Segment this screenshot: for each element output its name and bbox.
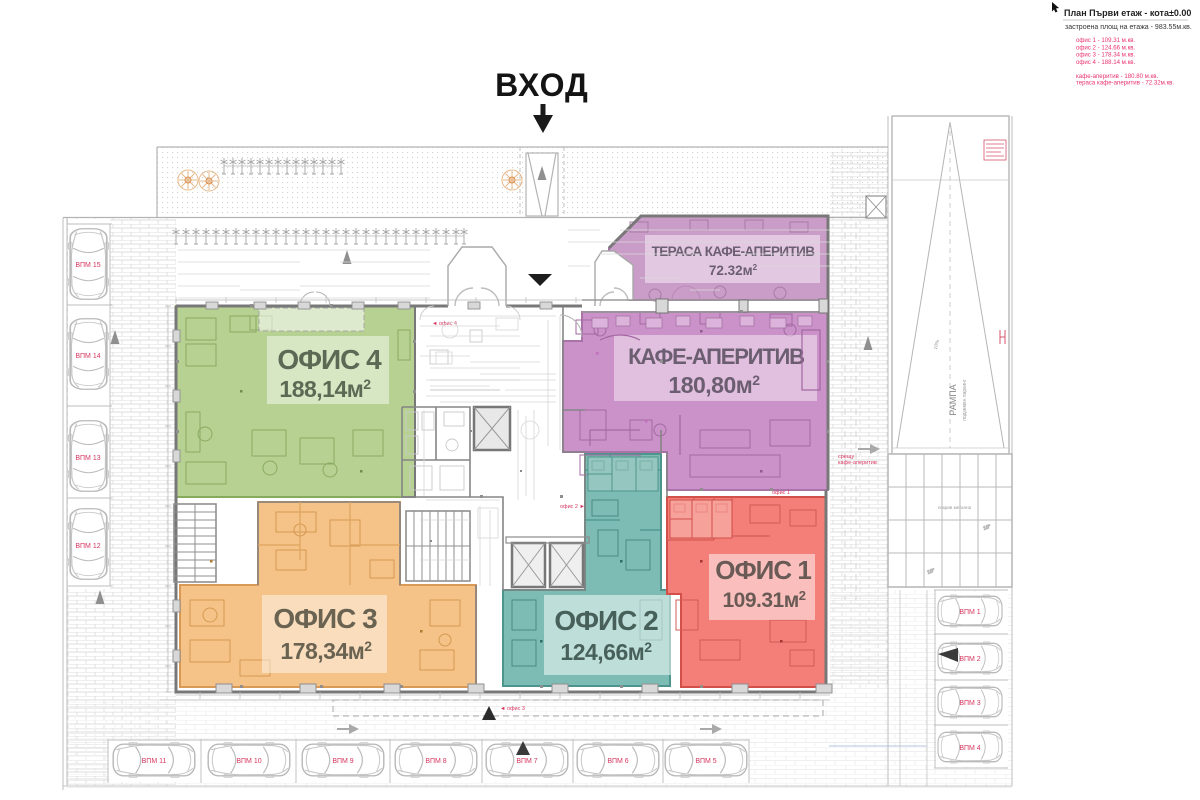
svg-text:ВПМ 6: ВПМ 6 xyxy=(607,758,628,765)
svg-text:ВПМ 1: ВПМ 1 xyxy=(959,609,980,616)
svg-text:ОФИС 1: ОФИС 1 xyxy=(715,555,811,585)
svg-text:подземен паркинг: подземен паркинг xyxy=(962,379,968,421)
svg-text:124,66м2: 124,66м2 xyxy=(560,639,652,665)
svg-text:◄ офис 3: ◄ офис 3 xyxy=(500,706,525,712)
svg-text:72.32м2: 72.32м2 xyxy=(709,263,758,278)
svg-text:офис 4 - 188.14 м.кв.: офис 4 - 188.14 м.кв. xyxy=(1076,59,1135,66)
svg-text:ВПМ 11: ВПМ 11 xyxy=(142,758,167,765)
svg-text:офис 3 - 178.34 м.кв.: офис 3 - 178.34 м.кв. xyxy=(1076,52,1135,59)
svg-text:178,34м2: 178,34м2 xyxy=(280,638,372,664)
svg-text:ВПМ 5: ВПМ 5 xyxy=(695,758,716,765)
svg-text:ВПМ 9: ВПМ 9 xyxy=(332,758,353,765)
svg-text:застроена площ на етажа - 983.: застроена площ на етажа - 983.55м.кв. xyxy=(1065,24,1192,31)
svg-text:покрив метална: покрив метална xyxy=(938,505,972,510)
svg-text:РАМПА: РАМПА xyxy=(948,384,958,415)
svg-text:офис 1 - 109.31 м.кв.: офис 1 - 109.31 м.кв. xyxy=(1076,37,1135,44)
svg-text:ВПМ 4: ВПМ 4 xyxy=(959,745,980,752)
svg-text:кафе-аперитив: кафе-аперитив xyxy=(838,460,877,466)
svg-text:ВПМ 8: ВПМ 8 xyxy=(425,758,446,765)
svg-text:180,80м2: 180,80м2 xyxy=(668,372,760,398)
svg-text:ВПМ 13: ВПМ 13 xyxy=(75,455,100,462)
svg-text:офис 1: офис 1 xyxy=(772,490,790,496)
svg-text:188,14м2: 188,14м2 xyxy=(279,376,371,402)
svg-text:ОФИС 3: ОФИС 3 xyxy=(273,603,377,634)
svg-text:ВПМ 3: ВПМ 3 xyxy=(959,700,980,707)
svg-text:ОФИС 4: ОФИС 4 xyxy=(277,344,382,375)
svg-text:ТЕРАСА КАФЕ-АПЕРИТИВ: ТЕРАСА КАФЕ-АПЕРИТИВ xyxy=(652,244,816,259)
svg-text:ВПМ 12: ВПМ 12 xyxy=(75,543,100,550)
svg-text:офис 2 ►: офис 2 ► xyxy=(560,504,585,510)
svg-text:КАФЕ-АПЕРИТИВ: КАФЕ-АПЕРИТИВ xyxy=(628,344,804,369)
svg-text:ВПМ 15: ВПМ 15 xyxy=(75,262,100,269)
svg-text:тераса кафе-аперитив - 72.32м.: тераса кафе-аперитив - 72.32м.кв. xyxy=(1076,80,1174,87)
svg-text:ОФИС 2: ОФИС 2 xyxy=(554,605,658,636)
svg-text:ВПМ 2: ВПМ 2 xyxy=(959,656,980,663)
svg-text:ВПМ 7: ВПМ 7 xyxy=(516,758,537,765)
svg-text:ВХОД: ВХОД xyxy=(495,67,589,103)
svg-text:109.31м2: 109.31м2 xyxy=(723,588,806,612)
svg-text:ВПМ 14: ВПМ 14 xyxy=(75,353,100,360)
svg-text:офис 2 - 124.66 м.кв.: офис 2 - 124.66 м.кв. xyxy=(1076,44,1135,51)
svg-text:План Първи етаж - кота±0.00: План Първи етаж - кота±0.00 xyxy=(1064,8,1191,18)
svg-text:ВПМ 10: ВПМ 10 xyxy=(236,758,261,765)
